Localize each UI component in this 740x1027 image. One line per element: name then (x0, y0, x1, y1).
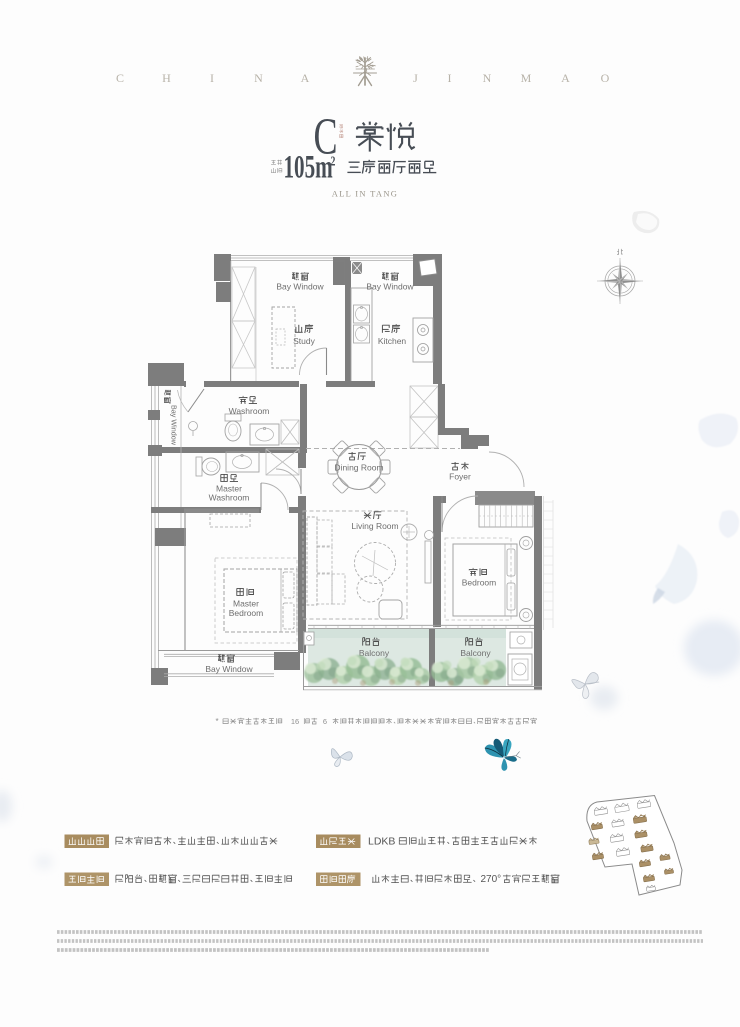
svg-text:Master: Master (233, 599, 259, 609)
svg-text:Bay Window: Bay Window (205, 664, 253, 674)
svg-text:Living Room: Living Room (351, 521, 398, 531)
svg-text:LDKB: LDKB (368, 836, 395, 848)
svg-text:Kitchen: Kitchen (378, 336, 407, 346)
svg-text:Bedroom: Bedroom (229, 608, 264, 618)
svg-text:Washroom: Washroom (209, 493, 250, 503)
svg-text:Bedroom: Bedroom (462, 578, 497, 588)
svg-text:16: 16 (291, 717, 299, 726)
svg-text:270°: 270° (481, 874, 502, 885)
svg-text:Dining Room: Dining Room (334, 463, 383, 473)
svg-text:Foyer: Foyer (449, 472, 471, 482)
svg-text:Balcony: Balcony (460, 648, 491, 658)
svg-text:6: 6 (323, 717, 327, 726)
svg-text:*: * (215, 717, 218, 726)
svg-text:Study: Study (293, 336, 315, 346)
svg-text:Bay Window: Bay Window (366, 282, 414, 292)
svg-text:Washroom: Washroom (229, 406, 270, 416)
svg-text:Bay Window: Bay Window (170, 405, 179, 446)
svg-text:Bay Window: Bay Window (276, 282, 324, 292)
